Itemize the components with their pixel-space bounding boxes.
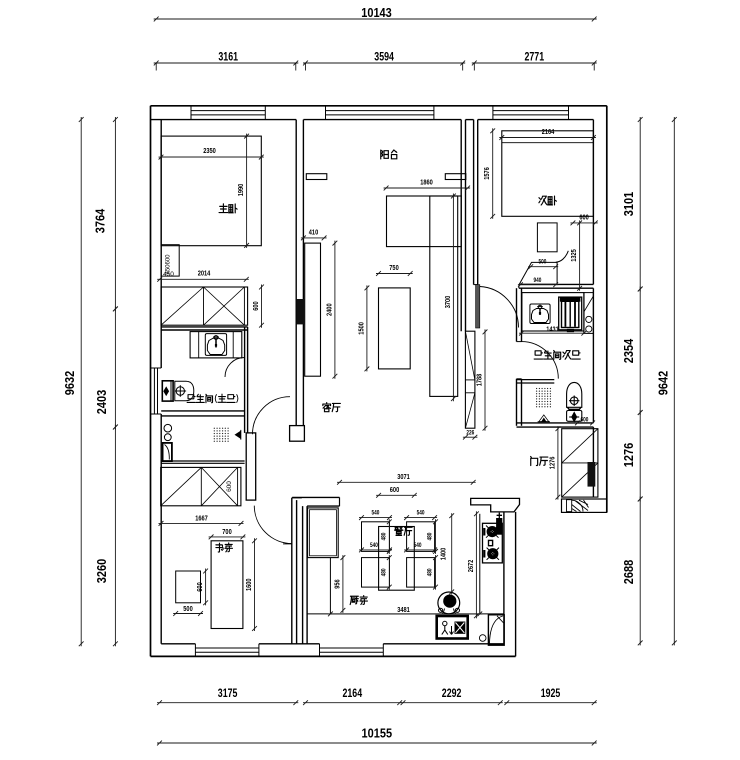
svg-text:1600: 1600 [244,578,253,591]
svg-text:3161: 3161 [218,49,238,63]
svg-text:10143: 10143 [361,6,392,20]
svg-text:3260: 3260 [95,559,109,583]
svg-text:1576: 1576 [482,167,491,180]
svg-text:2688: 2688 [622,560,636,584]
svg-text:2771: 2771 [525,49,545,63]
svg-text:3764: 3764 [94,209,108,233]
svg-text:600: 600 [579,213,588,222]
svg-text:540: 540 [372,509,380,516]
svg-text:10155: 10155 [362,726,393,740]
svg-text:750: 750 [389,263,398,272]
svg-text:1500: 1500 [356,322,365,335]
svg-text:1276: 1276 [622,443,636,467]
svg-text:480: 480 [427,532,434,540]
svg-text:3700: 3700 [443,296,452,309]
svg-text:1788: 1788 [474,374,483,387]
svg-text:1925: 1925 [541,686,561,700]
svg-text:1860: 1860 [420,178,433,187]
svg-text:600: 600 [581,416,589,423]
svg-text:1400: 1400 [439,548,448,561]
svg-text:600: 600 [226,481,233,492]
svg-text:2400: 2400 [324,303,333,316]
svg-text:540: 540 [414,542,422,549]
svg-text:410: 410 [309,227,318,236]
svg-text:600: 600 [251,301,260,310]
svg-text:540: 540 [370,542,378,549]
svg-text:3175: 3175 [218,686,238,700]
svg-text:2292: 2292 [442,686,462,700]
svg-text:1990: 1990 [236,184,245,197]
svg-text:600: 600 [390,485,399,494]
svg-text:2164: 2164 [343,686,363,700]
svg-text:500: 500 [539,258,547,265]
svg-text:3071: 3071 [397,472,410,481]
svg-text:9642: 9642 [657,371,671,395]
svg-text:480: 480 [380,568,387,576]
svg-text:480: 480 [427,568,434,576]
svg-text:600: 600 [195,582,204,591]
svg-text:940: 940 [533,277,541,284]
svg-text:2350: 2350 [203,146,216,155]
svg-text:2164: 2164 [542,127,555,136]
svg-text:9632: 9632 [63,371,77,395]
svg-text:956: 956 [332,579,341,588]
svg-text:450: 450 [163,271,174,278]
svg-text:1276: 1276 [547,457,556,470]
svg-text:480: 480 [380,532,387,540]
svg-text:2672: 2672 [466,560,475,573]
svg-text:700: 700 [222,527,231,536]
svg-text:1431: 1431 [546,325,559,334]
svg-text:226: 226 [466,430,474,437]
svg-text:3481: 3481 [397,605,410,614]
svg-text:2014: 2014 [198,268,211,277]
svg-text:2403: 2403 [95,390,109,414]
svg-text:2354: 2354 [622,339,636,363]
svg-text:3594: 3594 [374,49,394,63]
svg-text:500: 500 [183,604,192,613]
svg-text:1667: 1667 [195,514,208,523]
svg-text:540: 540 [417,509,425,516]
svg-text:1325: 1325 [569,249,578,262]
svg-text:3101: 3101 [622,192,636,216]
